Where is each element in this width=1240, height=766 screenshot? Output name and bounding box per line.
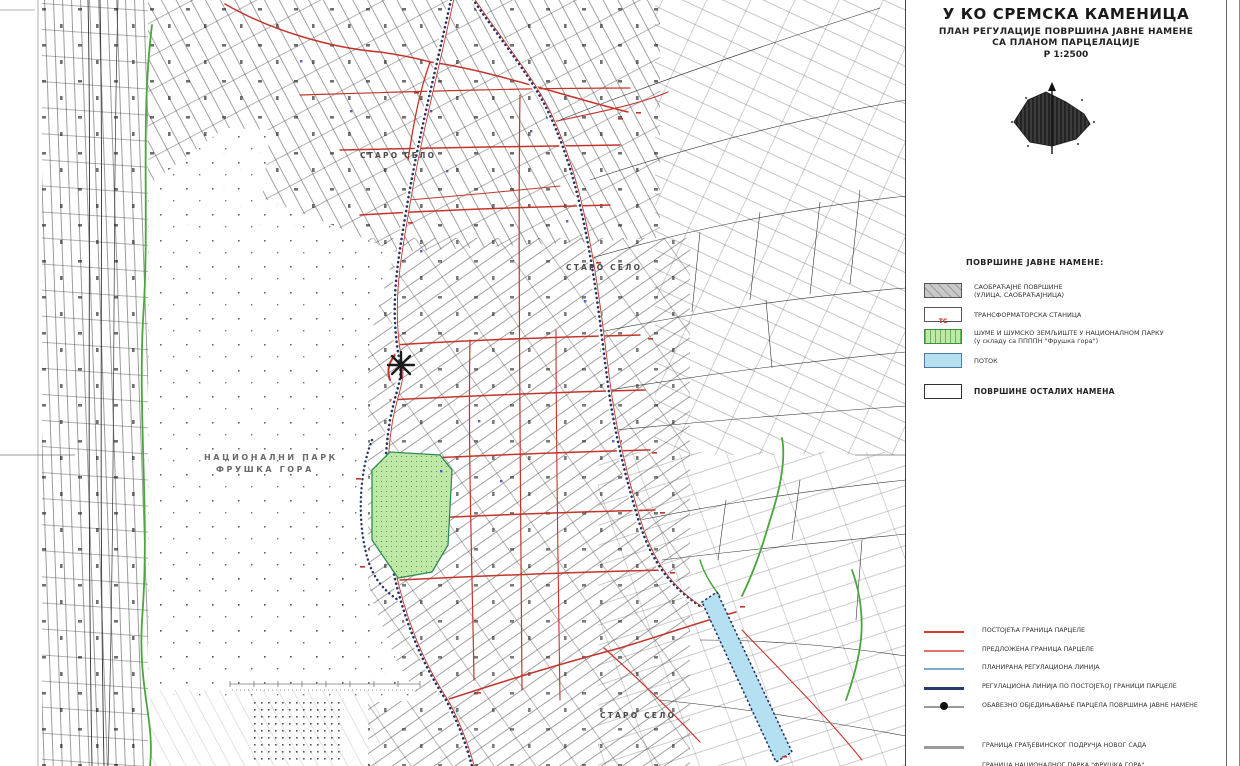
map-title: У КО СРЕМСКА КАМЕНИЦА (906, 5, 1226, 23)
legend-line-proposed-parcel: ПРЕДЛОЖЕНА ГРАНИЦА ПАРЦЕЛЕ (924, 644, 1224, 658)
legend-item-label: ШУМЕ И ШУМСКО ЗЕМЉИШТЕ У НАЦИОНАЛНОМ ПАР… (974, 329, 1224, 346)
label-national-park-2: ФРУШКА ГОРА (216, 465, 314, 474)
north-arrow-compass-icon (1004, 82, 1100, 160)
plan-sheet: СТАРО СЕЛО СТАРО СЕЛО СТАРО СЕЛО НАЦИОНА… (0, 0, 1240, 766)
traffic-surface-swatch (924, 283, 962, 298)
label-staro-selo-top: СТАРО СЕЛО (360, 151, 436, 160)
legend-item-label: ПОТОК (974, 357, 1224, 365)
merge-dot-symbol (940, 702, 948, 710)
legend-other-heading: ПОВРШИНЕ ОСТАЛИХ НАМЕНА (974, 387, 1224, 397)
navy-line-symbol (924, 687, 964, 690)
pink-line-symbol (924, 650, 964, 652)
other-surfaces-swatch (924, 384, 962, 399)
legend-item-transformer: ТС ТРАНСФОРМАТОРСКА СТАНИЦА (924, 307, 1224, 325)
label-national-park-1: НАЦИОНАЛНИ ПАРК (204, 453, 338, 462)
map-scale: Р 1:2500 (906, 50, 1226, 60)
legend-line-label: ПРЕДЛОЖЕНА ГРАНИЦА ПАРЦЕЛЕ (982, 646, 1232, 654)
legend-item-other-surfaces: ПОВРШИНЕ ОСТАЛИХ НАМЕНА (924, 384, 1224, 402)
legend-public-heading: ПОВРШИНЕ ЈАВНЕ НАМЕНЕ: (966, 258, 1104, 267)
stream-swatch (924, 353, 962, 368)
legend-line-city-boundary: ГРАНИЦА ГРАЂЕВИНСКОГ ПОДРУЧЈА НОВОГ САДА (924, 740, 1224, 754)
intersection-knot (388, 352, 414, 378)
label-staro-selo-mid: СТАРО СЕЛО (566, 263, 642, 272)
gray-line-symbol (924, 746, 964, 749)
transformer-station-swatch: ТС (924, 307, 962, 322)
legend-line-park-boundary: ГРАНИЦА НАЦИОНАЛНОГ ПАРКА "ФРУШКА ГОРА" (924, 760, 1224, 766)
legend-line-label: ОБАВЕЗНО ОБЈЕДИЊАВАЊЕ ПАРЦЕЛА ПОВРШИНА Ј… (982, 702, 1232, 710)
legend-line-existing-parcel: ПОСТОЈЕЋА ГРАНИЦА ПАРЦЕЛЕ (924, 625, 1224, 639)
map-subtitle-2: СА ПЛАНОМ ПАРЦЕЛАЦИЈЕ (906, 38, 1226, 48)
legend-line-label: ПЛАНИРАНА РЕГУЛАЦИОНА ЛИНИЈА (982, 664, 1232, 672)
legend-item-forest: ШУМЕ И ШУМСКО ЗЕМЉИШТЕ У НАЦИОНАЛНОМ ПАР… (924, 329, 1224, 349)
legend-item-label: САОБРАЋАЈНЕ ПОВРШИНЕ (УЛИЦА, САОБРАЋАЈНИ… (974, 283, 1224, 300)
plan-map-canvas: СТАРО СЕЛО СТАРО СЕЛО СТАРО СЕЛО НАЦИОНА… (0, 0, 908, 766)
legend-line-mandatory-merge: ОБАВЕЗНО ОБЈЕДИЊАВАЊЕ ПАРЦЕЛА ПОВРШИНА Ј… (924, 700, 1224, 714)
legend-line-label: ГРАНИЦА ГРАЂЕВИНСКОГ ПОДРУЧЈА НОВОГ САДА (982, 742, 1232, 750)
transformer-swatch-text: ТС (939, 318, 948, 325)
legend-line-label: ПОСТОЈЕЋА ГРАНИЦА ПАРЦЕЛЕ (982, 627, 1232, 635)
legend-item-traffic: САОБРАЋАЈНЕ ПОВРШИНЕ (УЛИЦА, САОБРАЋАЈНИ… (924, 283, 1224, 303)
legend-line-label: РЕГУЛАЦИОНА ЛИНИЈА ПО ПОСТОЈЕЋОЈ ГРАНИЦИ… (982, 683, 1232, 691)
legend-item-label: ТРАНСФОРМАТОРСКА СТАНИЦА (974, 311, 1224, 319)
title-block: У КО СРЕМСКА КАМЕНИЦА ПЛАН РЕГУЛАЦИЈЕ ПО… (906, 5, 1226, 60)
blue-line-symbol (924, 668, 964, 670)
legend-item-stream: ПОТОК (924, 353, 1224, 371)
legend-panel: У КО СРЕМСКА КАМЕНИЦА ПЛАН РЕГУЛАЦИЈЕ ПО… (905, 0, 1240, 766)
red-line-symbol (924, 631, 964, 633)
legend-line-label: ГРАНИЦА НАЦИОНАЛНОГ ПАРКА "ФРУШКА ГОРА" (982, 762, 1232, 766)
legend-line-regulation-existing: РЕГУЛАЦИОНА ЛИНИЈА ПО ПОСТОЈЕЋОЈ ГРАНИЦИ… (924, 681, 1224, 695)
label-staro-selo-bottom: СТАРО СЕЛО (600, 711, 676, 720)
forest-swatch (924, 329, 962, 344)
map-subtitle-1: ПЛАН РЕГУЛАЦИЈЕ ПОВРШИНА ЈАВНЕ НАМЕНЕ (906, 27, 1226, 37)
legend-line-planned-regulation: ПЛАНИРАНА РЕГУЛАЦИОНА ЛИНИЈА (924, 662, 1224, 676)
